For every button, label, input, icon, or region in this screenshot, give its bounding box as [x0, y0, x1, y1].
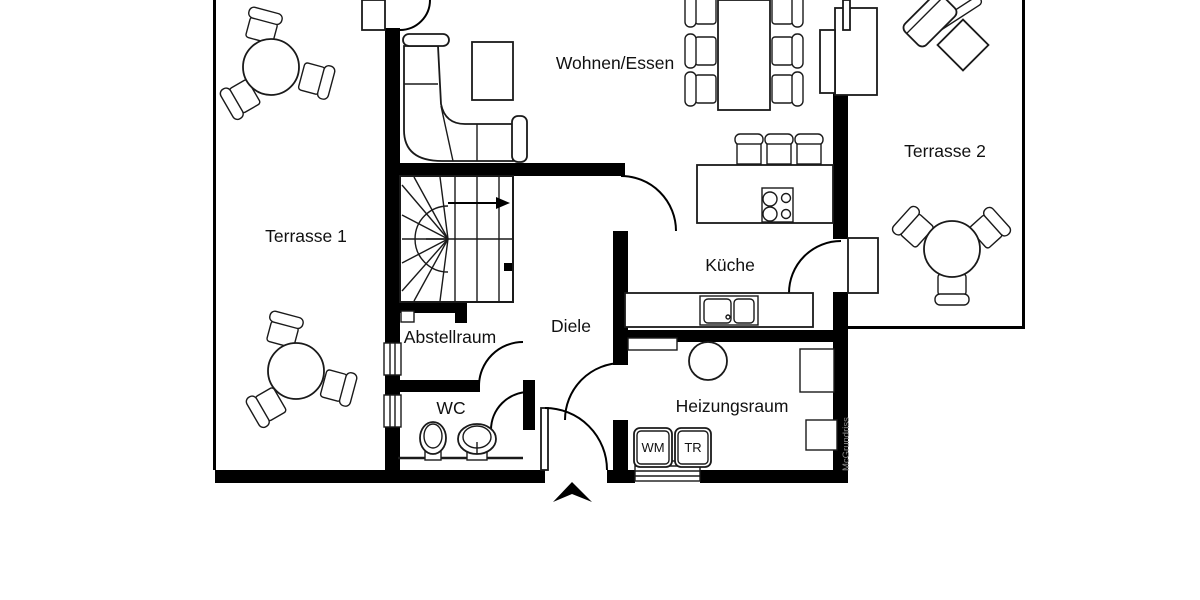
terrace1-dining-set-bottom: [245, 310, 358, 429]
entrance-door: [541, 408, 607, 470]
stove: [762, 188, 793, 222]
floorplan-page: WM TR Terrasse 1: [0, 0, 1200, 600]
dryer: TR: [675, 428, 711, 467]
dining-table: [718, 0, 770, 110]
terrace2-loungers: [901, 0, 988, 70]
room-label-diele: Diele: [551, 316, 591, 336]
room-label-wc: WC: [436, 398, 465, 418]
room-label-heizungsraum: Heizungsraum: [676, 396, 789, 416]
cabinet-bottom: [806, 420, 837, 450]
duct: [401, 311, 414, 322]
door-kueche-terrasse2: [789, 238, 878, 293]
room-label-abstellraum: Abstellraum: [404, 327, 496, 347]
entrance-arrow: [553, 482, 592, 502]
shelf: [628, 338, 677, 350]
washing-machine-label: WM: [641, 440, 664, 455]
bar-stools: [735, 134, 823, 164]
stairs-up-arrow: [448, 197, 512, 271]
kitchen-island: [697, 134, 833, 223]
room-label-wohnen-essen: Wohnen/Essen: [556, 53, 674, 73]
side-table: [472, 42, 513, 100]
window-wc: [384, 395, 401, 427]
dining-set: [685, 0, 803, 110]
kitchen-sink: [700, 296, 758, 325]
floorplan-svg: WM TR Terrasse 1: [0, 0, 1200, 600]
washing-machine: WM: [634, 428, 672, 467]
terrace1-dining-set-top: [219, 6, 336, 121]
door-abstellraum: [479, 342, 523, 386]
washbasin: [458, 424, 496, 460]
kitchen-counter: [625, 293, 813, 327]
staircase: [400, 176, 513, 322]
watermark-text: McGrundriss: [841, 417, 852, 471]
toilet: [420, 422, 446, 460]
dryer-label: TR: [684, 440, 701, 455]
boiler: [689, 342, 727, 380]
room-label-terrasse1: Terrasse 1: [265, 226, 347, 246]
window-abstellraum: [384, 343, 401, 375]
door-wohnen-kueche: [621, 176, 676, 231]
room-label-kueche: Küche: [705, 255, 755, 275]
terrace2-dining-set: [890, 204, 1012, 305]
cabinet-top: [800, 349, 834, 392]
room-label-terrasse2: Terrasse 2: [904, 141, 986, 161]
sliding-door-terrasse2: [820, 0, 877, 95]
door-terrasse1: [362, 0, 430, 30]
door-heizungsraum: [565, 363, 622, 420]
